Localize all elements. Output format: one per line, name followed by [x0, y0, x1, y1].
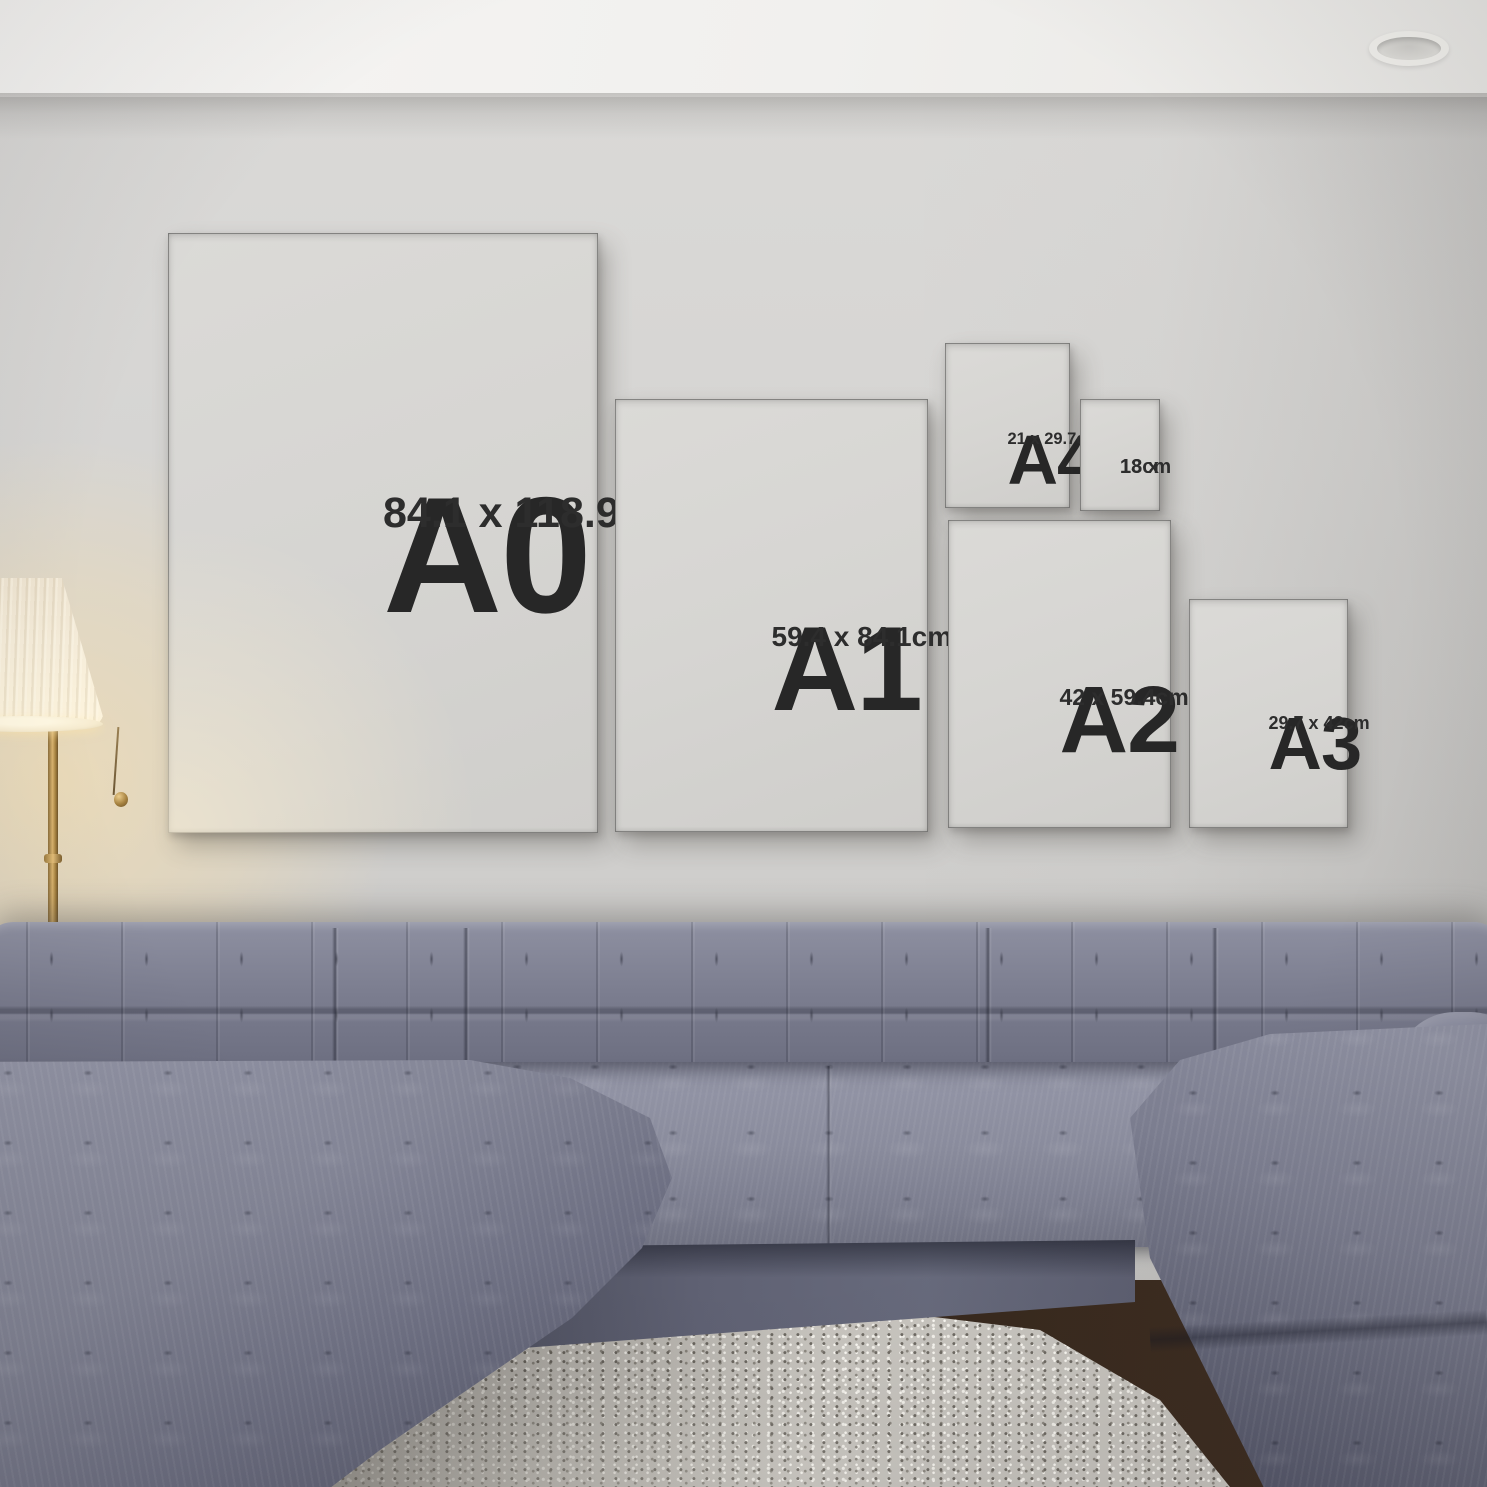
- sofa-chaise-left: [0, 1058, 725, 1487]
- sofa-seat-seam: [826, 1066, 832, 1244]
- living-room-scene: A0 84.1 x 118.9cm A1 59.4 x 84.1cm A4 21…: [0, 0, 1487, 1487]
- sofa: [0, 0, 1487, 1487]
